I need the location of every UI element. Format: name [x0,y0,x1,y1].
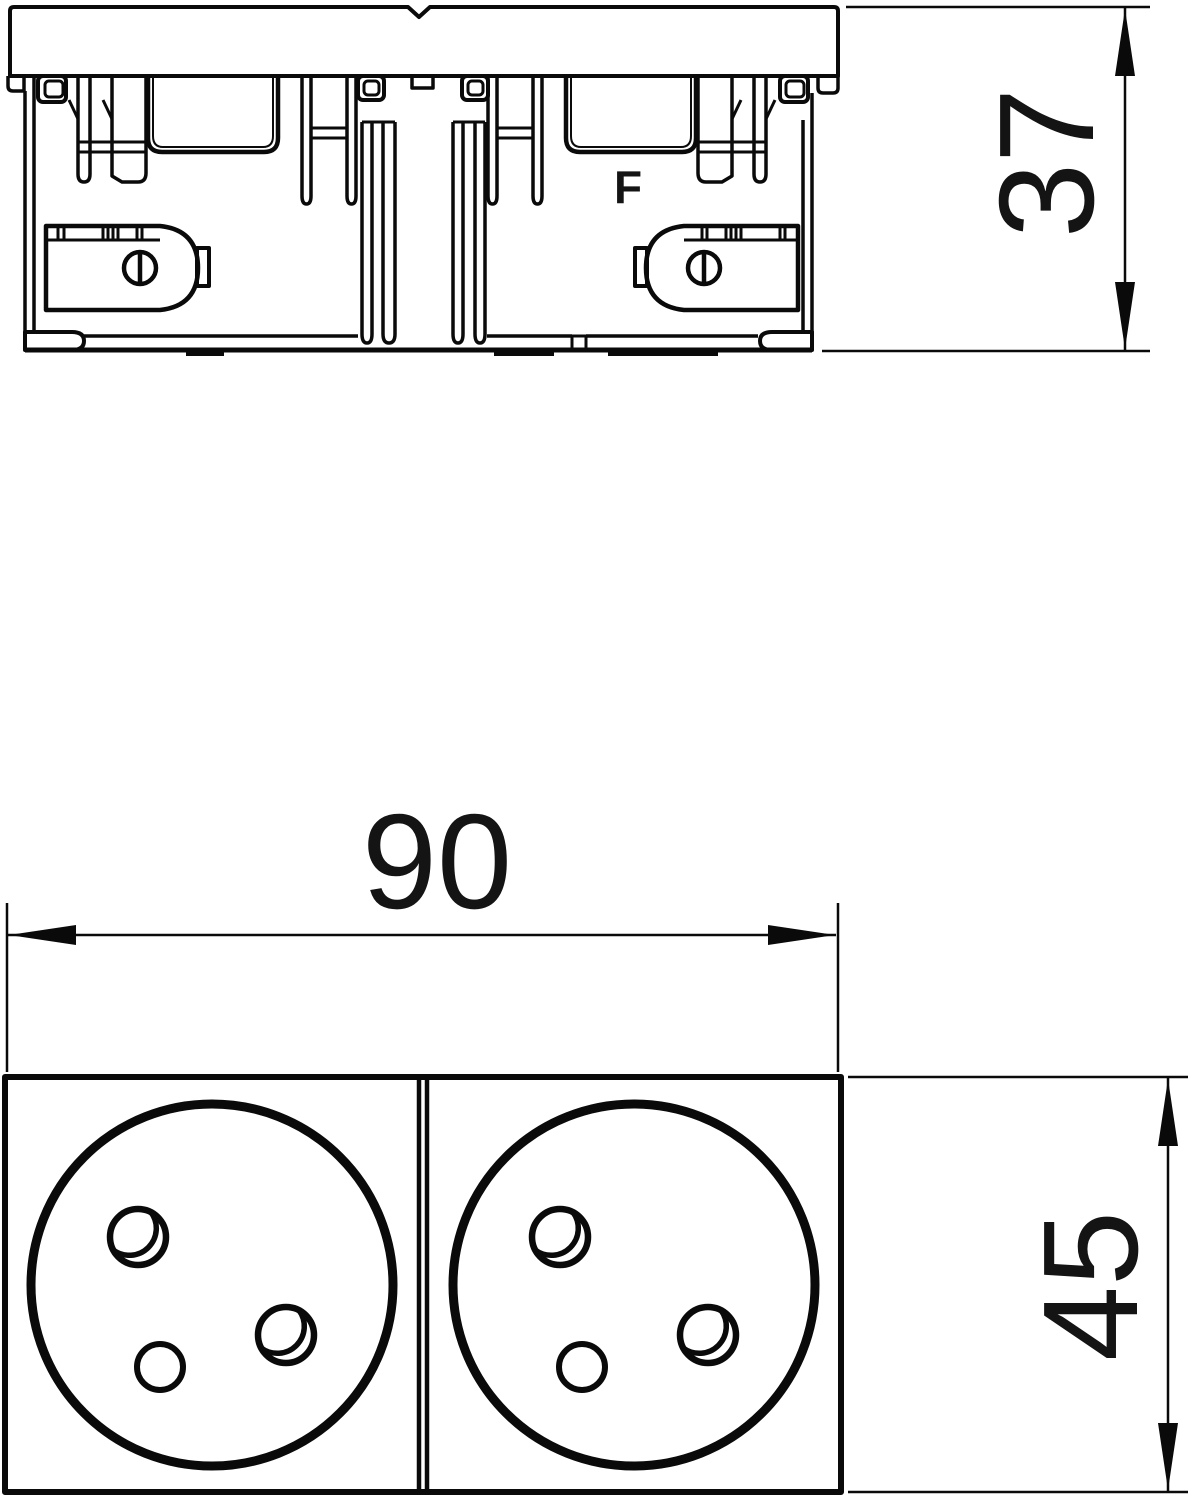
drawing-sheet: F 37 90 45 [0,0,1196,1500]
technical-drawing: F 37 90 45 [0,0,1196,1500]
hook-arm [754,76,766,182]
right-foot [760,332,812,350]
earth-pin-hole [559,1344,605,1390]
divider-wall [383,122,395,343]
front-view-outline [5,1077,841,1492]
socket-right [453,1104,815,1466]
bar-right-lip [818,76,838,93]
contact-pin [347,76,356,204]
contact-pin [488,76,497,204]
socket-left [31,1104,393,1466]
bottom-dash [494,350,554,356]
clip-inner [786,81,804,97]
clip-inner [364,81,379,95]
left-recess-inner [153,76,273,147]
contact-pin [533,76,542,204]
dimension-37: 37 [822,7,1150,351]
terminal-lug [635,248,647,286]
hook-arm-wide [112,76,146,182]
side-view-label: F [614,161,642,213]
contact-pin [302,76,311,204]
dimension-90-value: 90 [362,786,512,937]
bar-left-lip [8,76,24,91]
dimension-37-value: 37 [971,88,1122,238]
bottom-dash [186,350,224,356]
arrowhead-right-icon [768,925,835,945]
dimension-45: 45 [848,1077,1188,1492]
left-terminal [46,226,209,310]
divider-wall [453,122,463,343]
left-recess [148,76,278,152]
socket-face-circle [31,1104,393,1466]
arrowhead-down-icon [1158,1423,1178,1490]
divider-wall [362,122,372,343]
hook-arm [78,76,90,182]
clip-inner [45,81,63,97]
left-foot [25,332,84,350]
right-contact-pins [488,76,542,204]
arrowhead-left-icon [9,925,76,945]
dimension-90: 90 [7,786,838,1072]
bottom-dash [608,350,718,356]
left-contact-pins [302,76,356,204]
hook-arm-wide [698,76,732,182]
arrowhead-up-icon [1115,9,1135,76]
front-view [5,1077,841,1492]
side-view: F [8,7,838,356]
mounting-bar [10,7,838,76]
right-recess [566,76,696,152]
clip-inner [468,81,483,95]
earth-pin-hole [137,1344,183,1390]
dimension-45-value: 45 [1015,1211,1166,1361]
arrowhead-down-icon [1115,282,1135,349]
terminal-lug [197,248,209,286]
arrowhead-up-icon [1158,1079,1178,1146]
divider-wall [475,122,485,343]
right-recess-inner [571,76,691,147]
center-divider-walls [362,122,485,343]
right-contact-hooks [698,76,775,182]
right-terminal [635,226,798,310]
socket-face-circle [453,1104,815,1466]
left-contact-hooks [69,76,146,182]
bottom-edge [25,336,812,356]
